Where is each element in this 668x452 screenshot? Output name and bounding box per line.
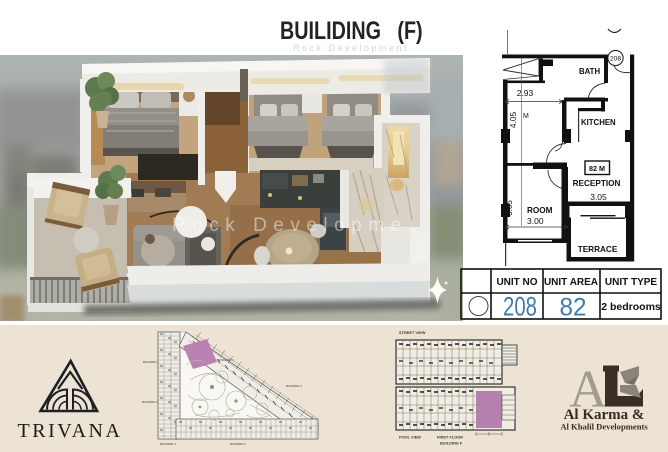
svg-text:UNIT NO: UNIT NO <box>496 277 537 288</box>
svg-text:TERRACE: TERRACE <box>578 245 618 254</box>
svg-text:BUILDING F: BUILDING F <box>440 441 463 446</box>
svg-text:208: 208 <box>610 56 622 63</box>
svg-text:BATH: BATH <box>579 67 600 76</box>
svg-text:TRIVANA: TRIVANA <box>18 420 123 442</box>
svg-text:208: 208 <box>503 292 537 321</box>
svg-text:ROOM: ROOM <box>527 206 553 215</box>
svg-text:3.05: 3.05 <box>590 192 607 202</box>
svg-text:POOL VIEW: POOL VIEW <box>399 435 421 440</box>
svg-text:BUILDING 6: BUILDING 6 <box>143 360 159 364</box>
svg-text:4.05: 4.05 <box>508 111 518 128</box>
svg-text:UNIT TYPE: UNIT TYPE <box>605 277 658 288</box>
svg-text:BUILDING 5: BUILDING 5 <box>142 400 158 404</box>
svg-text:BUILDING 3: BUILDING 3 <box>286 384 302 388</box>
svg-text:BUILDING 2: BUILDING 2 <box>230 442 246 446</box>
svg-text:2.93: 2.93 <box>517 88 534 98</box>
svg-text:Rock Developme: Rock Developme <box>172 215 408 236</box>
svg-text:M: M <box>523 113 529 120</box>
svg-text:RECEPTION: RECEPTION <box>573 179 621 188</box>
svg-text:82: 82 <box>560 294 587 321</box>
svg-text:3.00: 3.00 <box>527 216 544 226</box>
svg-text:2 bedrooms: 2 bedrooms <box>601 301 661 313</box>
svg-text:FIRST FLOOR: FIRST FLOOR <box>437 435 463 440</box>
svg-text:KITCHEN: KITCHEN <box>581 118 616 127</box>
svg-text:3.65: 3.65 <box>505 200 514 216</box>
svg-text:Al Khalil Developments: Al Khalil Developments <box>560 422 648 432</box>
svg-text:82 M: 82 M <box>589 164 605 173</box>
svg-text:UNIT AREA: UNIT AREA <box>544 277 598 288</box>
svg-text:BUILDING 4: BUILDING 4 <box>160 442 176 446</box>
svg-text:STREET VIEW: STREET VIEW <box>399 330 426 335</box>
svg-text:BUILDING 1: BUILDING 1 <box>218 358 234 362</box>
